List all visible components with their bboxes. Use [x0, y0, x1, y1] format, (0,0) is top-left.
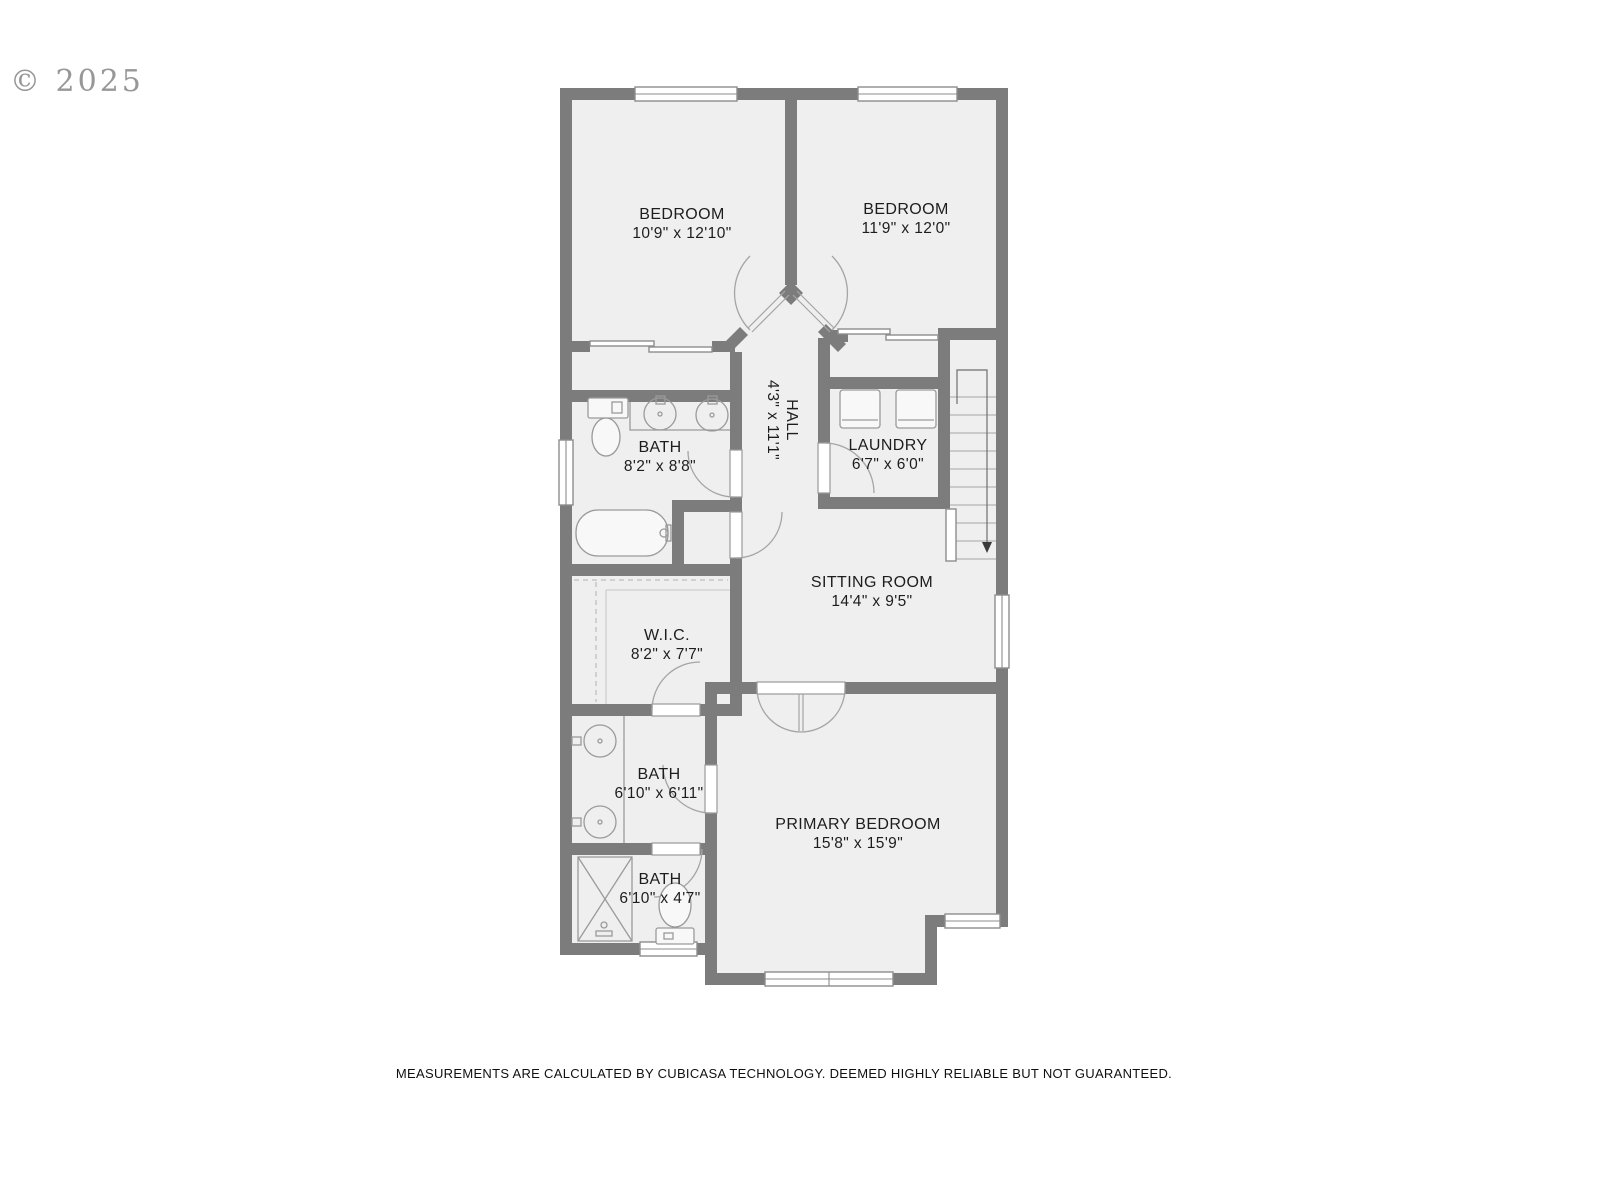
room-name: SITTING ROOM [811, 573, 933, 593]
window [858, 87, 957, 101]
room-label-bedroom2: BEDROOM 11'9" x 12'0" [861, 200, 950, 238]
window [765, 972, 893, 986]
window [635, 87, 737, 101]
room-label-sitting: SITTING ROOM 14'4" x 9'5" [811, 573, 933, 611]
washer [840, 390, 880, 428]
room-dims: 8'2" x 8'8" [624, 457, 696, 476]
room-label-wic: W.I.C. 8'2" x 7'7" [631, 626, 703, 664]
room-dims: 6'10" x 6'11" [614, 784, 703, 803]
room-name: HALL [782, 380, 802, 460]
window [559, 440, 573, 505]
disclaimer-text: MEASUREMENTS ARE CALCULATED BY CUBICASA … [396, 1066, 1172, 1081]
room-name: BEDROOM [632, 205, 731, 225]
room-dims: 11'9" x 12'0" [861, 219, 950, 238]
room-label-bath3: BATH 6'10" x 4'7" [619, 870, 700, 908]
room-label-laundry: LAUNDRY 6'7" x 6'0" [849, 436, 928, 474]
room-name: BATH [624, 438, 696, 458]
room-name: BEDROOM [861, 200, 950, 220]
stair-railing [946, 509, 956, 561]
room-dims: 14'4" x 9'5" [811, 592, 933, 611]
floorplan-drawing [0, 0, 1600, 1200]
room-label-bath1: BATH 8'2" x 8'8" [624, 438, 696, 476]
room-dims: 15'8" x 15'9" [775, 834, 940, 853]
window [945, 914, 1000, 928]
floorplan-page: © 2025 [0, 0, 1600, 1200]
room-name: PRIMARY BEDROOM [775, 815, 940, 835]
room-name: BATH [614, 765, 703, 785]
window [995, 595, 1009, 668]
room-label-bath2: BATH 6'10" x 6'11" [614, 765, 703, 803]
dryer [896, 390, 936, 428]
room-label-hall: HALL 4'3" x 11'1" [763, 380, 801, 460]
room-label-bedroom1: BEDROOM 10'9" x 12'10" [632, 205, 731, 243]
room-name: LAUNDRY [849, 436, 928, 456]
room-dims: 4'3" x 11'1" [763, 380, 782, 460]
room-name: W.I.C. [631, 626, 703, 646]
room-dims: 6'10" x 4'7" [619, 889, 700, 908]
room-dims: 6'7" x 6'0" [849, 455, 928, 474]
bathtub [576, 510, 671, 556]
room-dims: 10'9" x 12'10" [632, 224, 731, 243]
room-name: BATH [619, 870, 700, 890]
room-label-primary: PRIMARY BEDROOM 15'8" x 15'9" [775, 815, 940, 853]
room-dims: 8'2" x 7'7" [631, 645, 703, 664]
